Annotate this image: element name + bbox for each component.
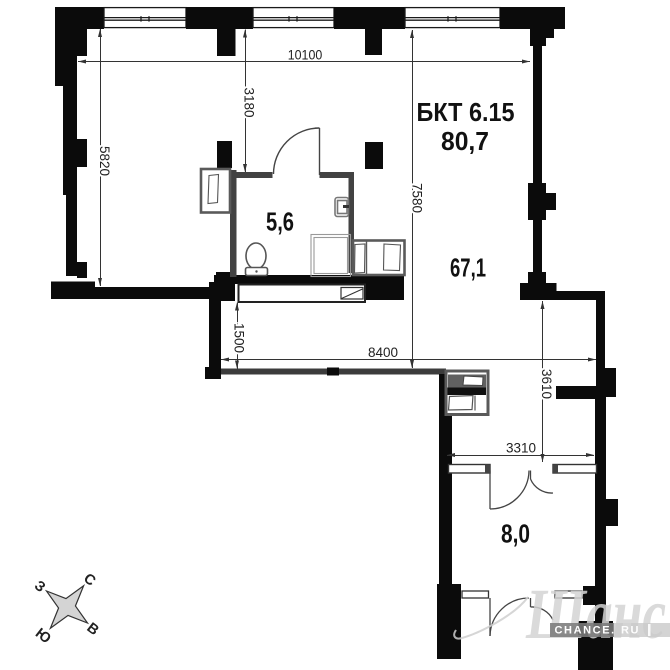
svg-text:3180: 3180 [242,88,257,118]
svg-text:RU: RU [621,625,640,637]
svg-text:1500: 1500 [232,323,247,353]
svg-text:Шанс: Шанс [525,574,666,654]
svg-text:CHANCE.: CHANCE. [555,625,616,637]
svg-text:8400: 8400 [368,345,398,360]
svg-text:67,1: 67,1 [450,253,486,283]
svg-text:7580: 7580 [410,183,425,213]
svg-text:3610: 3610 [539,369,554,399]
svg-text:3310: 3310 [506,441,536,456]
svg-text:10100: 10100 [288,48,323,63]
svg-text:БКТ 6.15: БКТ 6.15 [417,97,515,127]
svg-text:5,6: 5,6 [266,207,294,237]
svg-text:80,7: 80,7 [441,126,489,156]
svg-text:8,0: 8,0 [501,519,530,549]
svg-text:5820: 5820 [97,146,112,176]
